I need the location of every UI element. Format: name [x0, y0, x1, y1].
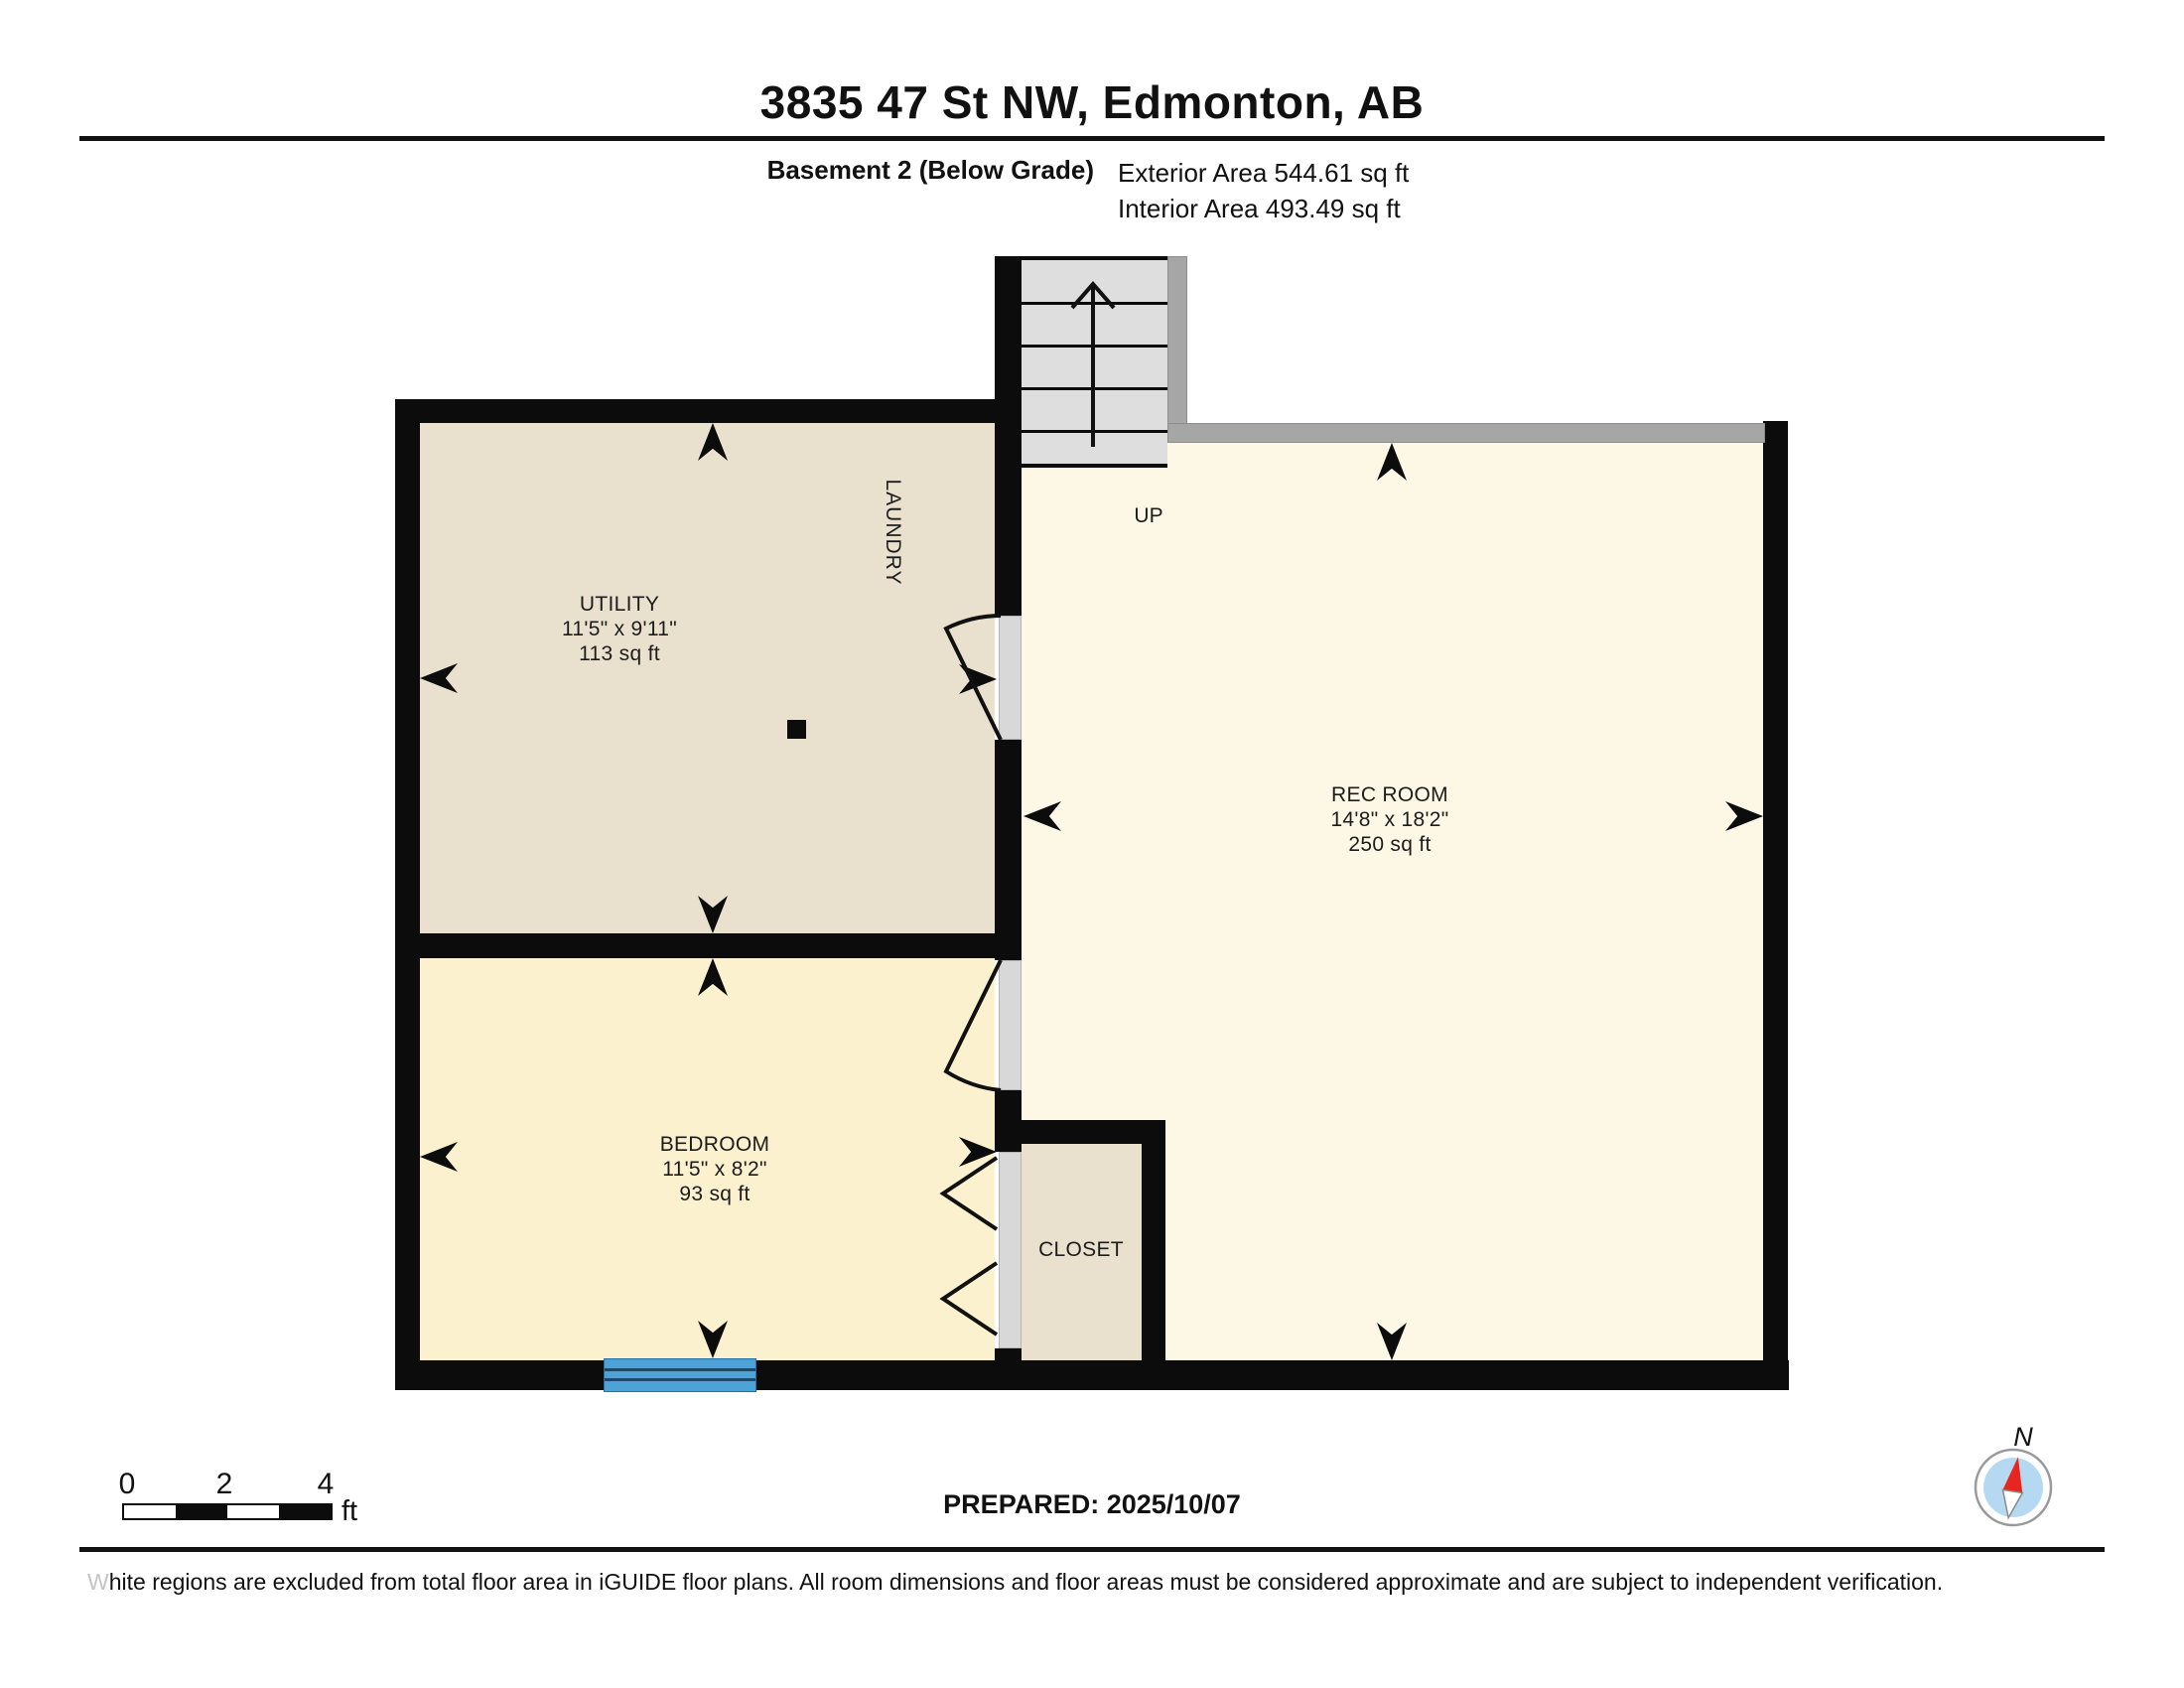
- window-pane-line: [605, 1368, 755, 1371]
- floor-label: Basement 2 (Below Grade): [0, 155, 1094, 186]
- window-pane-line: [605, 1378, 755, 1381]
- page-title: 3835 47 St NW, Edmonton, AB: [0, 75, 2184, 129]
- stair-tread-line: [1022, 430, 1167, 433]
- compass-north-label: N: [1993, 1422, 2053, 1453]
- bedroom-label: BEDROOM 11'5" x 8'2" 93 sq ft: [566, 1132, 864, 1206]
- bedroom-dims: 11'5" x 8'2": [566, 1157, 864, 1182]
- bedroom-door-opening: [999, 960, 1022, 1090]
- rec-room-top-wall-gray: [1167, 423, 1765, 443]
- area-summary: Exterior Area 544.61 sq ft Interior Area…: [1118, 155, 1409, 226]
- wall-center-upper: [995, 256, 1022, 616]
- laundry-door-opening: [999, 616, 1022, 740]
- wall-left: [395, 399, 420, 1390]
- rec-room-area: 250 sq ft: [1241, 832, 1539, 857]
- utility-room-dims: 11'5" x 9'11": [471, 617, 768, 641]
- exterior-area: Exterior Area 544.61 sq ft: [1118, 155, 1409, 191]
- disclaimer-text: White regions are excluded from total fl…: [87, 1569, 2122, 1596]
- prepared-date: PREPARED: 2025/10/07: [0, 1489, 2184, 1520]
- staircase: [1022, 256, 1167, 468]
- utility-room-label: UTILITY 11'5" x 9'11" 113 sq ft: [471, 592, 768, 666]
- stair-tread-line: [1022, 345, 1167, 348]
- wall-utility-bedroom: [395, 933, 1022, 958]
- bedroom-name: BEDROOM: [566, 1132, 864, 1157]
- laundry-label: LAUNDRY: [879, 433, 904, 632]
- floor-plan-page: 3835 47 St NW, Edmonton, AB Basement 2 (…: [0, 0, 2184, 1688]
- utility-room-area: 113 sq ft: [471, 641, 768, 666]
- compass-needle-north: [2002, 1456, 2027, 1493]
- disclaimer-body: hite regions are excluded from total flo…: [109, 1569, 1943, 1595]
- interior-area: Interior Area 493.49 sq ft: [1118, 191, 1409, 226]
- closet-top-wall: [995, 1120, 1165, 1144]
- header-divider: [79, 136, 2105, 141]
- rec-room-name: REC ROOM: [1241, 782, 1539, 807]
- stairs-up-label: UP: [1119, 504, 1178, 528]
- support-post: [787, 720, 806, 739]
- bedroom-area: 93 sq ft: [566, 1182, 864, 1206]
- rec-room-dims: 14'8" x 18'2": [1241, 807, 1539, 832]
- stair-tread-line: [1022, 387, 1167, 390]
- wall-center-bottom-nub: [995, 1348, 1022, 1390]
- closet-label: CLOSET: [1007, 1237, 1156, 1262]
- stairwell-right-wall: [1167, 256, 1187, 443]
- wall-center-middle: [995, 740, 1022, 960]
- wall-right: [1763, 421, 1788, 1390]
- stair-tread-line: [1022, 302, 1167, 305]
- disclaimer-lead-letter: W: [87, 1569, 109, 1595]
- rec-room-label: REC ROOM 14'8" x 18'2" 250 sq ft: [1241, 782, 1539, 857]
- wall-top: [395, 399, 1022, 423]
- footer-divider: [79, 1547, 2105, 1552]
- utility-room-floor: [420, 423, 995, 933]
- bedroom-window: [604, 1358, 756, 1392]
- utility-room-name: UTILITY: [471, 592, 768, 617]
